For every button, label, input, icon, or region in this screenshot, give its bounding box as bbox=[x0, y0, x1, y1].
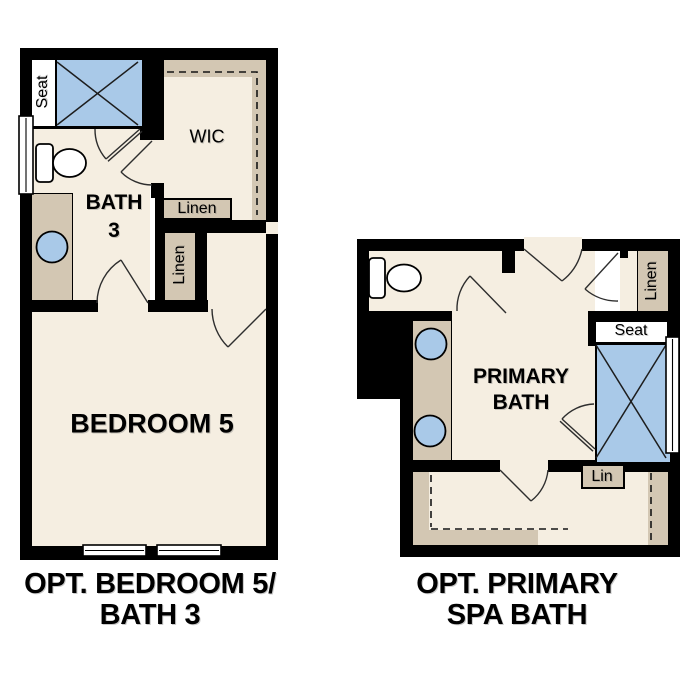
shower-door-swing bbox=[560, 404, 595, 451]
window bbox=[666, 337, 679, 453]
shower-door-swing bbox=[95, 129, 142, 161]
wic-label: WIC bbox=[190, 127, 225, 148]
linen-lower-label: Linen bbox=[171, 245, 189, 284]
left-plan-caption-line2: BATH 3 bbox=[0, 600, 300, 631]
left-plan-caption-line1: OPT. BEDROOM 5/ bbox=[0, 569, 300, 600]
lin-closet-label: Lin bbox=[591, 468, 612, 486]
shower-seat-label: Seat bbox=[34, 76, 52, 109]
window bbox=[19, 116, 33, 194]
wic-door-swing bbox=[121, 141, 152, 185]
bedroom5-label: BEDROOM 5 bbox=[70, 409, 234, 440]
linen-upper-label: Linen bbox=[177, 200, 216, 218]
right-plan-caption-line1: OPT. PRIMARY bbox=[367, 569, 667, 600]
primary-bath-label-line1: PRIMARY bbox=[473, 364, 569, 390]
sink-fixture bbox=[416, 329, 447, 360]
primary-bath-label-line2: BATH bbox=[493, 390, 550, 416]
right-plan-caption-line2: SPA BATH bbox=[367, 600, 667, 631]
bath3-door-swing bbox=[97, 260, 148, 303]
sink-fixture bbox=[37, 232, 68, 263]
window bbox=[83, 545, 146, 556]
right-plan-caption: OPT. PRIMARY SPA BATH bbox=[367, 569, 667, 631]
toilet-fixture bbox=[369, 258, 421, 298]
bath3-number-label: 3 bbox=[108, 218, 120, 244]
linen-primary-label: Linen bbox=[643, 261, 661, 300]
floorplan-page: Seat BATH 3 WIC Linen Linen BEDROOM 5 PR… bbox=[0, 0, 687, 687]
bath3-label: BATH bbox=[86, 190, 143, 216]
closet-door-swing bbox=[500, 470, 548, 501]
left-plan-caption: OPT. BEDROOM 5/ BATH 3 bbox=[0, 569, 300, 631]
entry-door-swing bbox=[524, 249, 582, 281]
shower-seat-label: Seat bbox=[615, 322, 648, 340]
wc-door-swing bbox=[457, 276, 506, 313]
shower-x-icon bbox=[57, 62, 138, 125]
sink-fixture bbox=[415, 416, 446, 447]
bedroom-door-swing bbox=[212, 309, 266, 347]
shower-x-icon bbox=[596, 345, 666, 458]
linen-door-swing bbox=[585, 253, 618, 301]
toilet-fixture bbox=[36, 144, 86, 182]
window bbox=[157, 545, 221, 556]
